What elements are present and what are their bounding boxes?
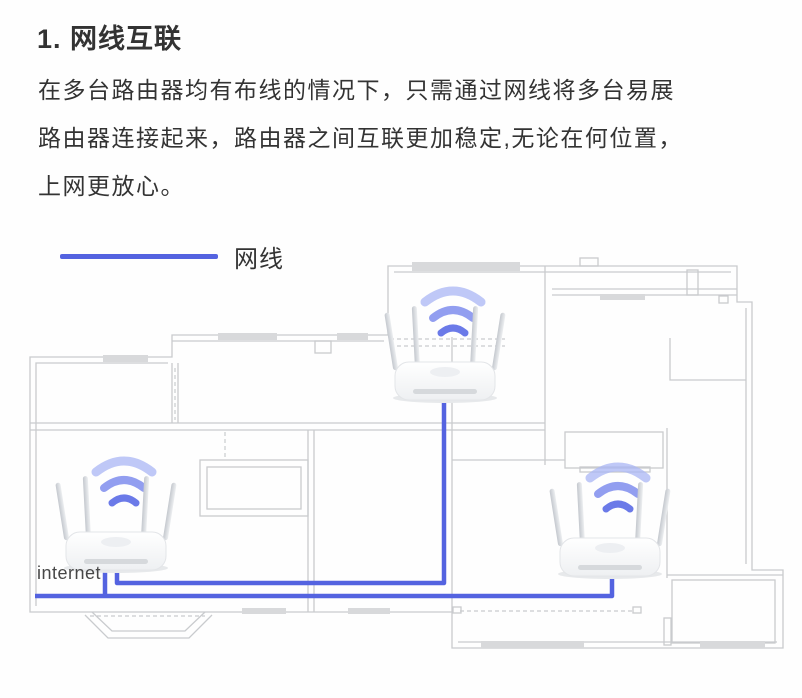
router-top (384, 291, 505, 403)
router-bottom-right (549, 467, 670, 579)
floor-plan-diagram (0, 0, 802, 698)
router-internet (55, 461, 176, 573)
infographic-page: 1. 网线互联 在多台路由器均有布线的情况下，只需通过网线将多台易展 路由器连接… (0, 0, 802, 698)
walls-outer (30, 266, 783, 648)
internet-label: internet (37, 563, 101, 584)
walls-details (200, 258, 775, 645)
walls-inner (36, 272, 777, 642)
